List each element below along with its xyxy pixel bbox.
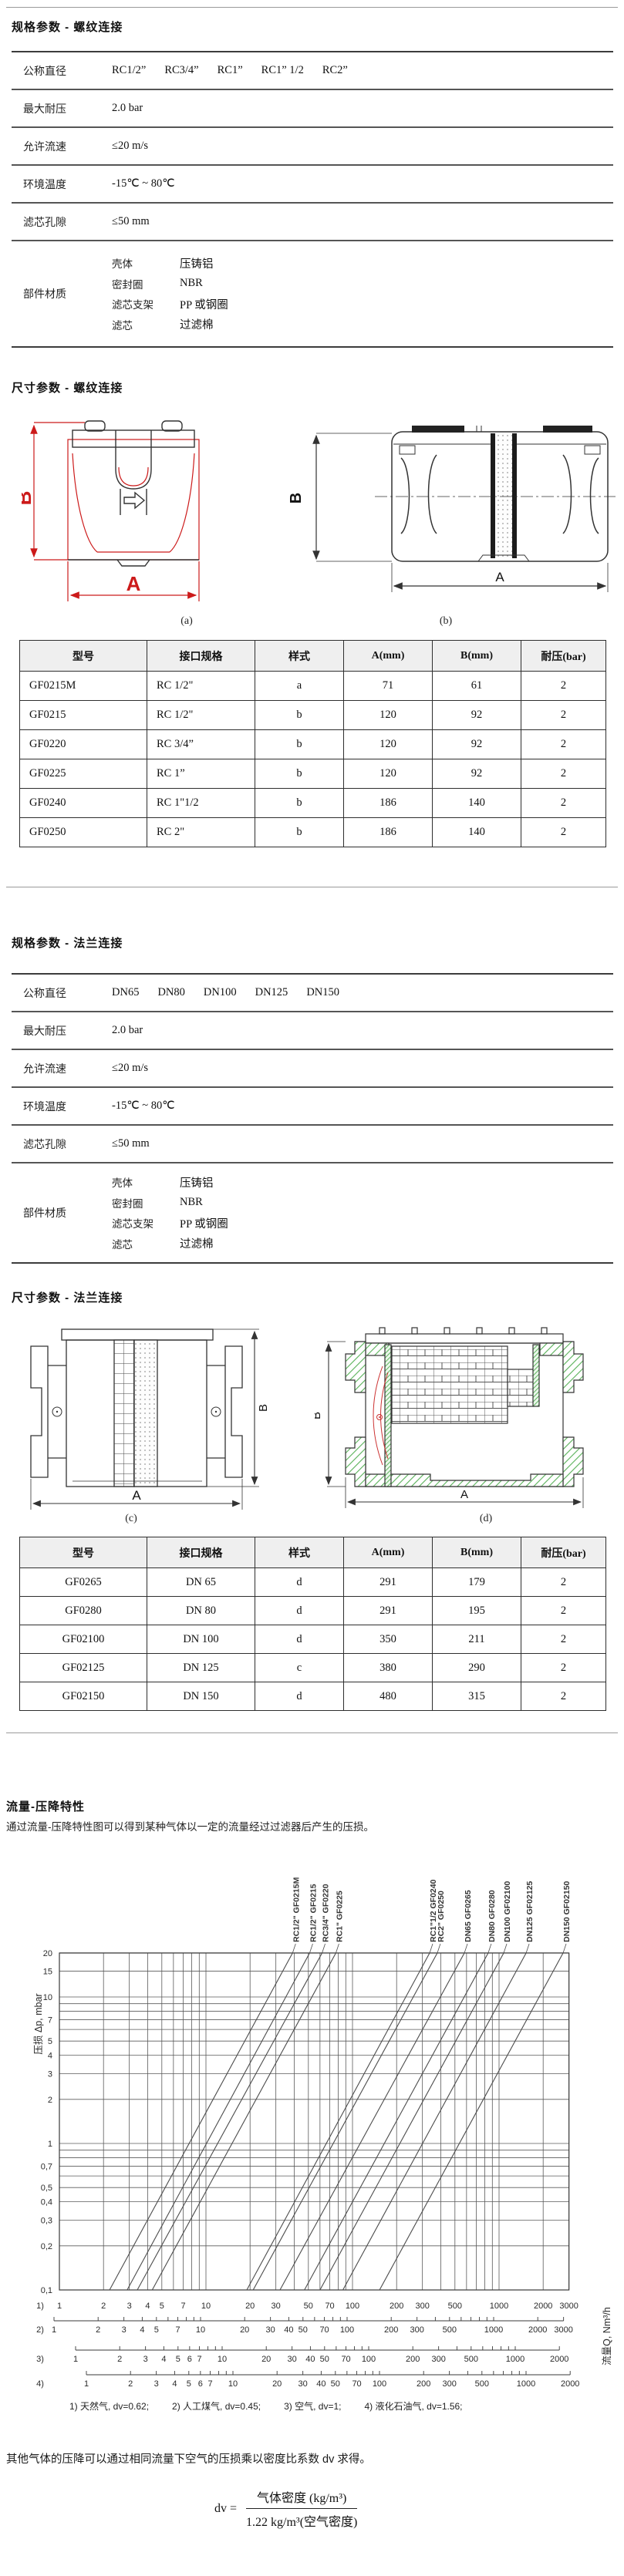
dim-letter-A: A (132, 1488, 141, 1503)
column-header: A(mm) (344, 641, 433, 672)
cell: 315 (433, 1682, 521, 1711)
material-lines: 壳体压铸铝密封圈NBR滤芯支架PP 或钢圈滤芯过滤棉 (112, 253, 228, 335)
table-row: GF02125DN 125c3802902 (20, 1654, 606, 1682)
spec-value: 2.0 bar (112, 1024, 143, 1037)
column-header: 样式 (255, 641, 344, 672)
cell: GF0215 (20, 701, 147, 730)
table-row: GF0220RC 3/4”b120922 (20, 730, 606, 759)
gas-axis-tick-label: 2 (128, 2379, 133, 2389)
cell: 211 (433, 1625, 521, 1654)
x-tick-label: 300 (415, 2302, 429, 2311)
dim-letter-B: B (22, 491, 35, 506)
y-tick-label: 0,2 (41, 2242, 52, 2251)
x-tick-label: 50 (304, 2302, 313, 2311)
spec-label: 公称直径 (12, 985, 112, 1001)
cell: 92 (433, 759, 521, 789)
cell: 2 (521, 1682, 606, 1711)
spec-values: -15℃ ~ 80℃ (112, 1099, 175, 1113)
spec-label: 最大耐压 (12, 1023, 112, 1039)
gas-axis-tick-label: 4 (161, 2355, 166, 2364)
cell: 480 (344, 1682, 433, 1711)
material-value: 过滤棉 (180, 316, 214, 332)
y-tick-label: 0,1 (41, 2286, 52, 2295)
cell: c (255, 1654, 344, 1682)
material-key: 密封圈 (112, 276, 180, 291)
spec-value: DN150 (306, 986, 339, 999)
gas-axis-tick-label: 1 (84, 2379, 89, 2389)
gas-axis-tick-label: 5 (187, 2379, 191, 2389)
cell: 179 (433, 1568, 521, 1597)
axis-row-id: 3) (36, 2355, 44, 2364)
gas-footnote-item: 2) 人工煤气, dv=0.45; (172, 2401, 261, 2412)
dimension-table-flange: 型号接口规格样式A(mm)B(mm)耐压(bar)GF0265DN 65d291… (19, 1537, 606, 1711)
axis-row-id: 4) (36, 2379, 44, 2389)
x-tick-label: 4 (145, 2302, 150, 2311)
x-tick-label: 3000 (559, 2302, 578, 2311)
cell: 120 (344, 701, 433, 730)
axis-row-id: 1) (36, 2302, 44, 2311)
cell: DN 80 (147, 1597, 255, 1625)
bottom-wall (366, 1474, 563, 1487)
section-title-dim-threaded: 尺寸参数 - 螺纹连接 (12, 379, 123, 396)
spec-row: 允许流速≤20 m/s (12, 1050, 613, 1088)
dim-letter-A: A (460, 1488, 468, 1501)
cell: 2 (521, 1625, 606, 1654)
spec-label: 最大耐压 (12, 101, 112, 116)
filter-frame-bar (491, 433, 495, 558)
cell: 2 (521, 1568, 606, 1597)
gas-axis-tick-label: 3 (154, 2379, 159, 2389)
gas-axis-tick-label: 30 (299, 2379, 308, 2389)
y-tick-label: 20 (43, 1949, 52, 1958)
flange-right-top (563, 1342, 583, 1392)
table-row: GF0250RC 2"b1861402 (20, 818, 606, 847)
gas-axis-tick-label: 50 (331, 2379, 340, 2389)
spec-values: ≤50 mm (112, 215, 150, 228)
gas-axis-tick-label: 70 (341, 2355, 350, 2364)
gas-axis-tick-label: 100 (362, 2355, 376, 2364)
material-line: 滤芯过滤棉 (112, 315, 228, 335)
material-line: 滤芯过滤棉 (112, 1234, 228, 1254)
gas-axis-tick-label: 1000 (484, 2325, 503, 2335)
material-key: 壳体 (112, 255, 180, 271)
cell: DN 125 (147, 1654, 255, 1682)
y-tick-label: 3 (48, 2069, 52, 2079)
cell: DN 100 (147, 1625, 255, 1654)
spec-value: ≤50 mm (112, 215, 150, 228)
gas-axis-tick-label: 50 (320, 2355, 329, 2364)
spec-value: -15℃ ~ 80℃ (112, 177, 175, 190)
filter-media (495, 433, 512, 558)
series-label-GF0225: RC1" GF0225 (335, 1891, 344, 1942)
fig-a-body (68, 421, 199, 566)
cell: 186 (344, 818, 433, 847)
cell: 2 (521, 789, 606, 818)
table-row: GF0215MRC 1/2"a71612 (20, 672, 606, 701)
cell: 380 (344, 1654, 433, 1682)
spec-value: ≤20 m/s (112, 1062, 148, 1075)
cell: b (255, 759, 344, 789)
x-tick-label: 100 (346, 2302, 359, 2311)
filter-media (134, 1340, 157, 1487)
gas-axis-tick-label: 4 (172, 2379, 177, 2389)
cell: GF0280 (20, 1597, 147, 1625)
spec-label: 公称直径 (12, 63, 112, 79)
flow-pressure-drop-chart: 2015107543210,70,50,40,30,20,1RC1/2" GF0… (0, 1843, 624, 2394)
datasheet-page: 规格参数 - 螺纹连接 公称直径RC1/2”RC3/4”RC1”RC1” 1/2… (0, 0, 624, 2576)
cell: 2 (521, 1654, 606, 1682)
gas-axis-tick-label: 40 (284, 2325, 293, 2335)
figure-a-threaded-style-a: B A (22, 407, 247, 614)
gas-axis-tick-label: 70 (352, 2379, 361, 2389)
gas-axis-tick-label: 5 (154, 2325, 159, 2335)
spec-values: RC1/2”RC3/4”RC1”RC1” 1/2RC2” (112, 64, 348, 77)
material-value: PP 或钢圈 (180, 1215, 228, 1231)
filter-cartridge (392, 1346, 508, 1423)
formula-numerator: 气体密度 (kg/m³) (246, 2487, 357, 2509)
gas-axis-tick-label: 100 (340, 2325, 354, 2335)
gas-axis-tick-label: 100 (373, 2379, 386, 2389)
gas-axis-tick-label: 30 (288, 2355, 297, 2364)
spec-table-threaded: 公称直径RC1/2”RC3/4”RC1”RC1” 1/2RC2”最大耐压2.0 … (12, 51, 613, 348)
spec-row: 环境温度-15℃ ~ 80℃ (12, 166, 613, 204)
material-key: 滤芯 (112, 317, 180, 332)
filter-frame-bar (512, 433, 517, 558)
divider (6, 887, 618, 887)
cell: RC 1/2" (147, 672, 255, 701)
spec-value: RC2” (322, 64, 348, 77)
column-header: B(mm) (433, 641, 521, 672)
fig-a-red-outline (34, 423, 199, 601)
cell: 92 (433, 730, 521, 759)
cell: d (255, 1597, 344, 1625)
spec-values: -15℃ ~ 80℃ (112, 177, 175, 190)
cell: d (255, 1625, 344, 1654)
figure-b-threaded-style-b: B A (284, 410, 616, 609)
series-label-GF02150: DN150 GF02150 (562, 1881, 572, 1942)
table-row: GF0240RC 1"1/2b1861402 (20, 789, 606, 818)
cell: RC 3/4” (147, 730, 255, 759)
material-line: 密封圈NBR (112, 274, 228, 295)
x-axis-title: 流量Q, Nm³/h (602, 2307, 612, 2366)
cell: RC 1” (147, 759, 255, 789)
cell: 195 (433, 1597, 521, 1625)
gas-footnote-item: 4) 液化石油气, dv=1.56; (364, 2401, 462, 2412)
gas-axis-tick-label: 2 (117, 2355, 122, 2364)
y-tick-label: 4 (48, 2052, 52, 2061)
spec-value: DN125 (255, 986, 288, 999)
gas-axis-tick-label: 70 (319, 2325, 329, 2335)
table-row: GF0280DN 80d2911952 (20, 1597, 606, 1625)
x-tick-label: 500 (448, 2302, 462, 2311)
spec-row: 环境温度-15℃ ~ 80℃ (12, 1088, 613, 1126)
material-line: 滤芯支架PP 或钢圈 (112, 1213, 228, 1234)
cell: 61 (433, 672, 521, 701)
gas-axis-tick-label: 7 (176, 2325, 180, 2335)
material-value: 过滤棉 (180, 1235, 214, 1251)
gas-axis-tick-label: 6 (187, 2355, 192, 2364)
material-key: 滤芯支架 (112, 296, 180, 311)
y-tick-label: 10 (43, 1993, 52, 2002)
x-tick-label: 30 (272, 2302, 281, 2311)
gas-axis-tick-label: 1000 (517, 2379, 535, 2389)
formula-lhs: dv = (214, 2502, 237, 2516)
cell: d (255, 1568, 344, 1597)
spec-label: 滤芯孔隙 (12, 214, 112, 230)
table-header-row: 型号接口规格样式A(mm)B(mm)耐压(bar) (20, 1537, 606, 1568)
cell: b (255, 730, 344, 759)
column-header: 样式 (255, 1537, 344, 1568)
table-row: GF02150DN 150d4803152 (20, 1682, 606, 1711)
material-line: 密封圈NBR (112, 1193, 228, 1214)
cell: GF0265 (20, 1568, 147, 1597)
material-lines: 壳体压铸铝密封圈NBR滤芯支架PP 或钢圈滤芯过滤棉 (112, 1172, 228, 1254)
gas-axis-tick-label: 1 (52, 2325, 56, 2335)
divider (6, 1732, 618, 1733)
axis-row-id: 2) (36, 2325, 44, 2335)
section-title-flow: 流量-压降特性 (6, 1798, 85, 1814)
cell: 2 (521, 730, 606, 759)
column-header: A(mm) (344, 1537, 433, 1568)
column-header: 耐压(bar) (521, 641, 606, 672)
y-tick-label: 0,3 (41, 2216, 52, 2225)
dim-letter-B: B (315, 1412, 323, 1419)
gas-axis-tick-label: 4 (140, 2325, 144, 2335)
gasket-strip (533, 1345, 539, 1406)
material-key: 滤芯 (112, 1236, 180, 1251)
material-line: 壳体压铸铝 (112, 253, 228, 274)
series-leader (309, 1944, 312, 1953)
x-tick-label: 70 (325, 2302, 334, 2311)
dv-formula: dv = 气体密度 (kg/m³) 1.22 kg/m³(空气密度) (214, 2487, 357, 2530)
section-title-dim-flange: 尺寸参数 - 法兰连接 (12, 1289, 123, 1305)
cell: 2 (521, 1597, 606, 1625)
cell: b (255, 701, 344, 730)
column-header: 型号 (20, 1537, 147, 1568)
series-label-GF0215M: RC1/2" GF0215M (292, 1877, 301, 1942)
gas-axis-tick-label: 500 (464, 2355, 478, 2364)
y-axis-title: 压损 Δp, mbar (33, 1993, 44, 2054)
cell: 120 (344, 730, 433, 759)
dimension-table-threaded: 型号接口规格样式A(mm)B(mm)耐压(bar)GF0215MRC 1/2"a… (19, 640, 606, 847)
spec-values: ≤50 mm (112, 1137, 150, 1150)
section-title-spec-flange: 规格参数 - 法兰连接 (12, 934, 123, 951)
series-leader (504, 1944, 507, 1953)
gas-axis-tick-label: 40 (305, 2355, 315, 2364)
spec-row: 最大耐压2.0 bar (12, 90, 613, 128)
figure-label-a: (a) (164, 615, 210, 628)
cell: 291 (344, 1597, 433, 1625)
gas-axis-tick-label: 7 (197, 2355, 202, 2364)
cell: a (255, 672, 344, 701)
gas-axis-tick-label: 20 (240, 2325, 249, 2335)
fig-c-body (31, 1329, 259, 1510)
gas-axis-tick-label: 10 (196, 2325, 205, 2335)
spec-value: DN80 (157, 986, 184, 999)
x-tick-label: 1 (57, 2302, 62, 2311)
spec-row: 最大耐压2.0 bar (12, 1012, 613, 1050)
dim-letter-B: B (288, 493, 305, 503)
column-header: 接口规格 (147, 641, 255, 672)
figure-c-flange-style-c: A B (23, 1323, 289, 1511)
spec-label: 环境温度 (12, 177, 112, 192)
material-line: 滤芯支架PP 或钢圈 (112, 294, 228, 315)
gas-axis-tick-label: 2000 (528, 2325, 547, 2335)
x-tick-label: 2 (101, 2302, 106, 2311)
cell: GF0250 (20, 818, 147, 847)
material-key: 壳体 (112, 1174, 180, 1190)
cell: GF0215M (20, 672, 147, 701)
series-label-GF02125: DN125 GF02125 (525, 1881, 535, 1942)
cell: 2 (521, 759, 606, 789)
x-tick-label: 3 (127, 2302, 132, 2311)
gas-axis-tick-label: 300 (442, 2379, 456, 2389)
spec-value: DN65 (112, 986, 139, 999)
cell: DN 150 (147, 1682, 255, 1711)
spec-values: DN65DN80DN100DN125DN150 (112, 986, 339, 999)
formula-fraction: 气体密度 (kg/m³) 1.22 kg/m³(空气密度) (246, 2487, 357, 2530)
cell: 71 (344, 672, 433, 701)
series-leader (322, 1944, 325, 1953)
series-leader (437, 1944, 440, 1953)
gas-axis-tick-label: 7 (208, 2379, 213, 2389)
y-tick-label: 7 (48, 2015, 52, 2025)
gas-axis-tick-label: 5 (176, 2355, 180, 2364)
cell: 2 (521, 672, 606, 701)
column-header: 型号 (20, 641, 147, 672)
gas-footnote-item: 1) 天然气, dv=0.62; (69, 2401, 149, 2412)
cell: 290 (433, 1654, 521, 1682)
series-label-GF02100: DN100 GF02100 (503, 1881, 512, 1942)
gas-axis-tick-label: 50 (299, 2325, 308, 2335)
column-header: 接口规格 (147, 1537, 255, 1568)
gas-axis-tick-label: 20 (272, 2379, 282, 2389)
filter-support-mesh (114, 1340, 134, 1487)
material-value: 压铸铝 (180, 255, 214, 271)
spec-row: 滤芯孔隙≤50 mm (12, 204, 613, 241)
series-leader (336, 1944, 339, 1953)
gas-axis-tick-label: 200 (406, 2355, 420, 2364)
spec-label: 允许流速 (12, 139, 112, 154)
gas-footnote-item: 3) 空气, dv=1; (284, 2401, 341, 2412)
y-tick-label: 1 (48, 2140, 52, 2149)
spec-value: RC1” (218, 64, 243, 77)
gas-axis-tick-label: 1000 (506, 2355, 524, 2364)
spec-label: 环境温度 (12, 1099, 112, 1114)
spec-value: RC1/2” (112, 64, 146, 77)
spec-value: 2.0 bar (112, 102, 143, 115)
gas-axis-tick-label: 3 (122, 2325, 126, 2335)
cell: 92 (433, 701, 521, 730)
dim-letter-B: B (257, 1404, 270, 1412)
x-tick-label: 10 (201, 2302, 211, 2311)
gas-axis-tick-label: 6 (198, 2379, 203, 2389)
spec-value: ≤50 mm (112, 1137, 150, 1150)
cell: 350 (344, 1625, 433, 1654)
x-tick-label: 5 (160, 2302, 164, 2311)
cell: 140 (433, 789, 521, 818)
cell: GF0220 (20, 730, 147, 759)
gas-axis-tick-label: 20 (261, 2355, 271, 2364)
table-row: GF0225RC 1”b120922 (20, 759, 606, 789)
series-leader (488, 1944, 491, 1953)
gas-axis-tick-label: 2 (96, 2325, 100, 2335)
chart-intro-text: 通过流量-压降特性图可以得到某种气体以一定的流量经过过滤器后产生的压损。 (6, 1818, 562, 1834)
gas-axis-tick-label: 500 (475, 2379, 489, 2389)
y-tick-label: 0,4 (41, 2198, 52, 2207)
divider (6, 7, 618, 8)
cell: 2 (521, 818, 606, 847)
spec-row: 公称直径DN65DN80DN100DN125DN150 (12, 975, 613, 1012)
cell: b (255, 789, 344, 818)
gasket-strip (385, 1345, 391, 1487)
series-leader (563, 1944, 566, 1953)
spec-value: RC3/4” (164, 64, 198, 77)
gas-axis-tick-label: 3 (143, 2355, 148, 2364)
figure-label-d: (d) (463, 1513, 509, 1525)
cell: 120 (344, 759, 433, 789)
fig-b-body (316, 426, 616, 592)
spec-table-flange: 公称直径DN65DN80DN100DN125DN150最大耐压2.0 bar允许… (12, 973, 613, 1264)
gas-axis-tick-label: 10 (218, 2355, 227, 2364)
column-header: B(mm) (433, 1537, 521, 1568)
cell: RC 1/2" (147, 701, 255, 730)
spec-values: 2.0 bar (112, 102, 143, 115)
cell: RC 1"1/2 (147, 789, 255, 818)
table-row: GF02100DN 100d3502112 (20, 1625, 606, 1654)
material-key: 密封圈 (112, 1195, 180, 1211)
flange-left-top (346, 1342, 366, 1392)
spec-values: ≤20 m/s (112, 1062, 148, 1075)
gas-axis-tick-label: 40 (316, 2379, 325, 2389)
y-tick-label: 5 (48, 2037, 52, 2046)
spec-row: 允许流速≤20 m/s (12, 128, 613, 166)
gas-axis-tick-label: 10 (228, 2379, 238, 2389)
gas-axis-tick-label: 500 (443, 2325, 457, 2335)
cell: GF0240 (20, 789, 147, 818)
column-header: 耐压(bar) (521, 1537, 606, 1568)
cell: GF02100 (20, 1625, 147, 1654)
figure-label-b: (b) (423, 615, 469, 628)
spec-row: 部件材质壳体压铸铝密封圈NBR滤芯支架PP 或钢圈滤芯过滤棉 (12, 241, 613, 346)
table-row: GF0215RC 1/2"b120922 (20, 701, 606, 730)
spec-label: 允许流速 (12, 1061, 112, 1076)
x-tick-label: 2000 (534, 2302, 552, 2311)
series-label-GF0265: DN65 GF0265 (464, 1890, 473, 1942)
gas-axis-tick-label: 3000 (554, 2325, 572, 2335)
series-label-GF0215: RC1/2" GF0215 (309, 1884, 318, 1942)
series-leader (430, 1944, 433, 1953)
y-tick-label: 15 (43, 1968, 52, 1977)
material-key: 滤芯支架 (112, 1215, 180, 1231)
spec-label: 滤芯孔隙 (12, 1136, 112, 1152)
spec-label: 部件材质 (12, 1205, 112, 1221)
spec-row: 滤芯孔隙≤50 mm (12, 1126, 613, 1163)
cell: 140 (433, 818, 521, 847)
cell: 2 (521, 701, 606, 730)
gas-axis-tick-label: 200 (384, 2325, 398, 2335)
x-tick-label: 7 (181, 2302, 186, 2311)
material-line: 壳体压铸铝 (112, 1172, 228, 1193)
gas-axis-tick-label: 2000 (550, 2355, 568, 2364)
series-label-GF0220: RC3/4" GF0220 (322, 1884, 331, 1942)
x-tick-label: 1000 (490, 2302, 508, 2311)
table-row: GF0265DN 65d2911792 (20, 1568, 606, 1597)
gas-axis-tick-label: 30 (266, 2325, 275, 2335)
series-label-GF0250: RC2" GF0250 (437, 1891, 446, 1942)
dim-letter-A: A (126, 572, 141, 595)
gas-axis-tick-label: 300 (410, 2325, 423, 2335)
